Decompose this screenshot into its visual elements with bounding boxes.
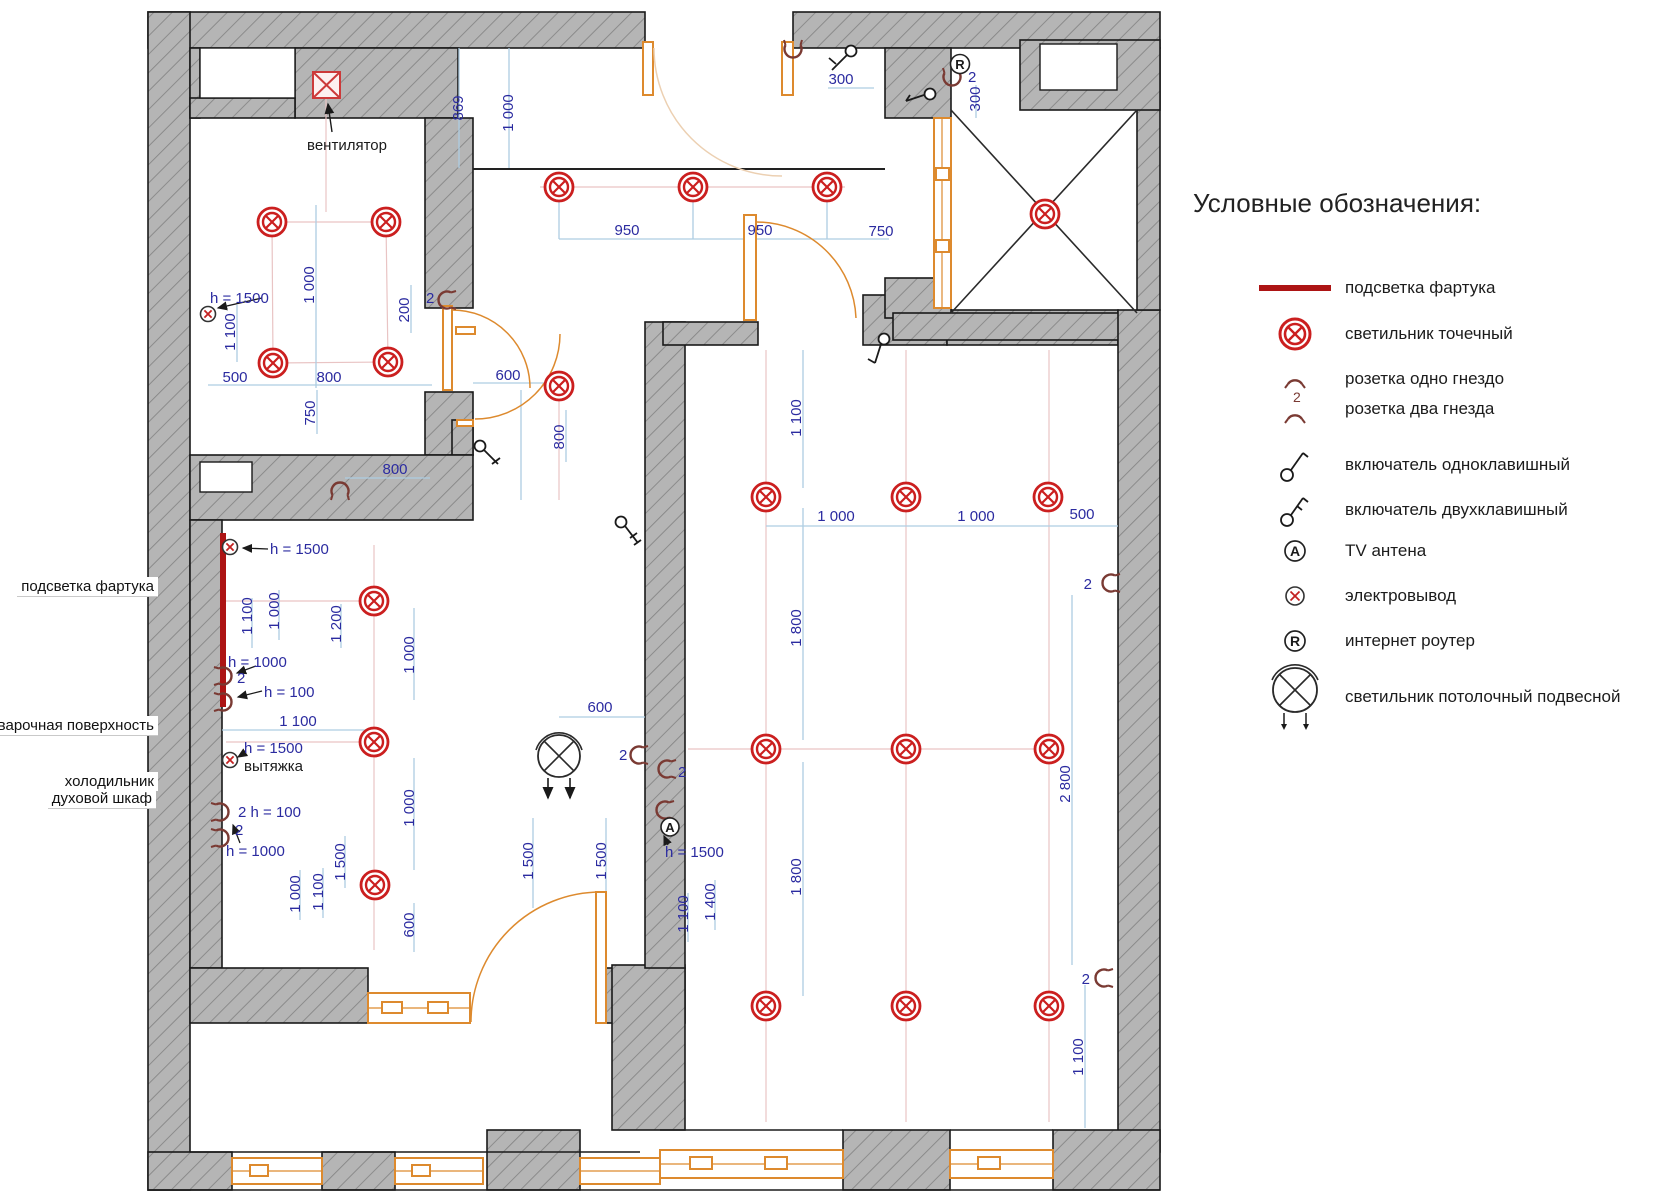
dim-text: 500 [1069,506,1094,523]
spotlight-icon [1034,483,1062,511]
spotlight-icon [360,728,388,756]
dim-text: h = 1500 [665,844,724,861]
legend-title: Условные обозначения: [1193,188,1613,219]
spotlight-icon [258,208,286,236]
dim-text: 1 800 [788,609,805,647]
fan-label: вентилятор [307,137,387,154]
dim-text: 600 [401,912,418,937]
dim-text: 2 [619,747,627,764]
spotlight-icon [545,173,573,201]
spotlight-icon [1245,314,1345,354]
dim-text: 1 100 [675,895,692,933]
legend-item-label: включатель двухклавишный [1345,500,1568,520]
label-oven: духовой шкаф [48,789,156,809]
dim-text: h = 1500 [244,740,303,757]
legend-item-label: TV антена [1345,541,1426,561]
dim-text: 869 [450,95,467,120]
dim-text: 1 000 [287,875,304,913]
dim-text: 1 100 [239,597,256,635]
spotlight-icon [372,208,400,236]
dim-text: 2 h = 100 [238,804,301,821]
dim-text: 2 [426,290,434,307]
tv-antenna-glyph: A [665,820,675,835]
spotlight-icon [752,992,780,1020]
dim-text: 1 500 [520,842,537,880]
legend-row-pendant: светильник потолочный подвесной [1245,662,1675,732]
electrical-floor-plan: A R 869 1 000 1 000 200 2 h = 1500 1 100… [0,0,1680,1197]
spotlight-icon [1035,735,1063,763]
fan-icon [313,72,340,98]
dim-text: 1 800 [788,858,805,896]
dim-text: h = 1500 [210,290,269,307]
tv-antenna-icon: A [1245,538,1345,564]
legend-row-backsplash: подсветка фартука [1245,268,1675,308]
legend-item-label: интернет роутер [1345,631,1475,651]
dim-text: 2 [678,764,686,781]
dim-text: 1 000 [500,94,517,132]
pendant-light-icon [1245,662,1345,732]
switch-one-key-icon [475,441,501,465]
dim-text: 300 [828,71,853,88]
legend-row-electro: электровывод [1245,576,1675,616]
dim-text: 1 100 [310,873,327,911]
spotlight-icon [1035,992,1063,1020]
spotlight-icon [360,587,388,615]
dim-text: 1 500 [593,842,610,880]
switch-two-key-icon [1245,490,1345,530]
spotlight-icon [259,349,287,377]
dim-text: 300 [967,86,984,111]
legend-item-label: электровывод [1345,586,1456,606]
legend-item-label: включатель одноклавишный [1345,455,1570,475]
backsplash-led-line [220,533,226,707]
dim-text: 800 [382,461,407,478]
socket-double-icon: 2 [1245,389,1345,429]
legend-row-socket-double: 2 розетка два гнезда [1245,389,1675,429]
spotlight-icon [361,871,389,899]
legend-item-label: подсветка фартука [1345,278,1495,298]
dim-text: h = 1500 [270,541,329,558]
socket-double-badge: 2 [1293,389,1301,405]
router-glyph: R [955,57,965,72]
spotlight-icon [374,348,402,376]
dim-text: 950 [747,222,772,239]
legend-item-label: светильник точечный [1345,324,1513,344]
spotlight-icon [752,483,780,511]
dim-text: 1 200 [328,605,345,643]
dim-text: 1 000 [266,592,283,630]
dim-text: 1 000 [817,508,855,525]
dim-text: 600 [495,367,520,384]
backsplash-line-icon [1245,283,1345,293]
label-backsplash: подсветка фартука [17,577,158,597]
router-glyph: R [1290,633,1300,649]
dim-text: 600 [587,699,612,716]
dim-text: 750 [868,223,893,240]
switch-two-key-icon [616,517,642,546]
legend-item-label: розетка одно гнездо [1345,369,1504,389]
dim-text: 1 500 [332,843,349,881]
dim-text: 1 100 [788,399,805,437]
spotlight-icon [679,173,707,201]
socket-icon [1096,969,1114,987]
electro-output-icon [201,307,216,322]
dim-text: 1 000 [301,266,318,304]
spotlight-icon [892,735,920,763]
spotlight-icon [892,992,920,1020]
switch-one-key-icon [1245,445,1345,485]
dim-text: 800 [551,424,568,449]
dim-text: 2 800 [1057,765,1074,803]
legend-row-switch-two: включатель двухклавишный [1245,490,1675,530]
dim-text: 1 400 [702,883,719,921]
dim-text: 1 000 [957,508,995,525]
dim-text: h = 1000 [226,843,285,860]
spotlight-icon [892,483,920,511]
dim-text: 2 [968,69,976,86]
dim-text: 200 [396,297,413,322]
tv-glyph: A [1290,543,1300,559]
legend-row-spotlight: светильник точечный [1245,314,1675,354]
dim-text: 950 [614,222,639,239]
dim-text: h = 1000 [228,654,287,671]
legend-row-switch-one: включатель одноклавишный [1245,445,1675,485]
dim-text: 1 100 [279,713,317,730]
pendant-light-icon [536,733,582,798]
legend-item-label: светильник потолочный подвесной [1345,687,1621,707]
hood-label: вытяжка [244,758,304,775]
spotlight-icon [813,173,841,201]
internet-router-icon: R [951,55,970,74]
dim-text: 800 [316,369,341,386]
dim-text: 500 [222,369,247,386]
legend-row-tv: A TV антена [1245,531,1675,571]
dim-text: 750 [302,400,319,425]
dim-text: h = 100 [264,684,314,701]
dim-text: 2 [237,670,245,687]
legend-row-router: R интернет роутер [1245,621,1675,661]
switch-one-key-icon [829,46,857,71]
legend-item-label: розетка два гнезда [1345,399,1494,419]
dim-text: 1 000 [401,789,418,827]
dim-text: 1 000 [401,636,418,674]
dim-text: 2 [1082,971,1090,988]
internet-router-icon: R [1245,628,1345,654]
electro-output-icon [223,753,238,768]
dim-text: 2 [235,822,243,839]
spotlight-icon [545,372,573,400]
dim-text: 1 100 [222,313,239,351]
electro-output-icon [223,540,238,555]
electro-output-icon [1245,584,1345,608]
dim-text: 1 100 [1070,1038,1087,1076]
label-hob: варочная поверхность [0,716,158,736]
spotlight-icon [1031,200,1059,228]
dim-text: 2 [1084,576,1092,593]
spotlight-icon [752,735,780,763]
